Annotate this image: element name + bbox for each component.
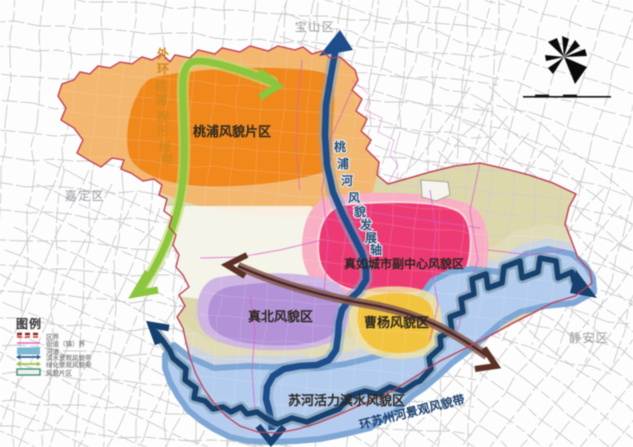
svg-text:真如城市副中心风貌区: 真如城市副中心风貌区 <box>344 256 464 271</box>
svg-text:楔: 楔 <box>157 109 170 124</box>
svg-text:静安区: 静安区 <box>569 330 610 345</box>
svg-text:轴: 轴 <box>370 242 382 257</box>
svg-text:真北风貌区: 真北风貌区 <box>248 309 313 324</box>
svg-text:外: 外 <box>157 46 169 61</box>
svg-text:风貌片区: 风貌片区 <box>46 368 73 377</box>
svg-text:区界: 区界 <box>46 333 60 341</box>
svg-text:曹杨风貌区: 曹杨风貌区 <box>364 315 429 330</box>
svg-text:宝山区: 宝山区 <box>295 20 336 34</box>
svg-text:桃浦风貌片区: 桃浦风貌片区 <box>193 124 271 139</box>
svg-text:浦: 浦 <box>337 156 349 171</box>
svg-text:河: 河 <box>340 173 353 188</box>
svg-text:嘉定区: 嘉定区 <box>65 188 106 203</box>
svg-text:图例: 图例 <box>16 316 42 331</box>
svg-text:浦: 浦 <box>155 92 167 107</box>
svg-text:街道（镇）界: 街道（镇）界 <box>46 339 86 348</box>
svg-text:桃: 桃 <box>155 78 167 93</box>
svg-text:风: 风 <box>348 191 360 205</box>
svg-text:绿化景观风貌带: 绿化景观风貌带 <box>46 360 92 369</box>
svg-text:桃: 桃 <box>334 139 346 154</box>
svg-text:形: 形 <box>157 124 169 138</box>
svg-text:环: 环 <box>157 62 169 76</box>
svg-text:滨水景观风貌带: 滨水景观风貌带 <box>46 353 92 362</box>
svg-text:绿: 绿 <box>159 139 172 154</box>
svg-text:苏河活力滨水风貌区: 苏河活力滨水风貌区 <box>288 393 405 408</box>
svg-text:带: 带 <box>161 152 173 167</box>
svg-text:貌: 貌 <box>353 204 366 219</box>
svg-text:发: 发 <box>359 217 373 232</box>
